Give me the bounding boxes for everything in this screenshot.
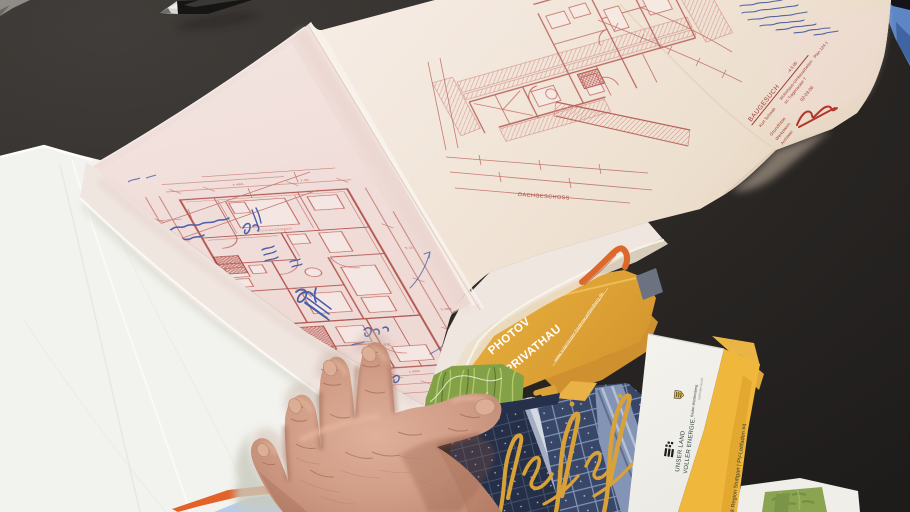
svg-text:1.90: 1.90 [299, 179, 309, 182]
svg-text:5.11: 5.11 [404, 246, 414, 249]
